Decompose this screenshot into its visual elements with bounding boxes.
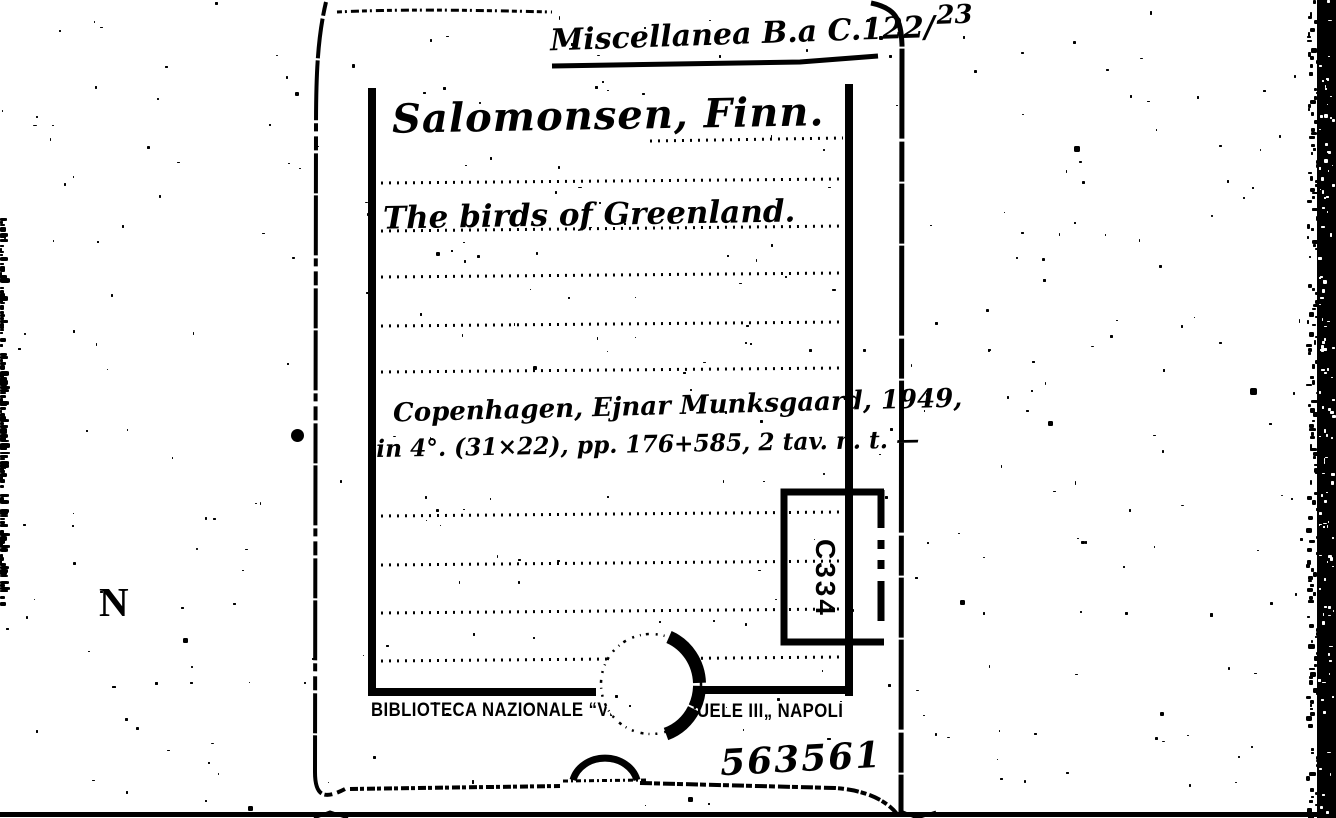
hole-punch-layer bbox=[0, 0, 1336, 818]
scanned-catalog-card-page: Miscellanea B.a C.122/23 Salomonsen, Fin… bbox=[0, 0, 1336, 818]
